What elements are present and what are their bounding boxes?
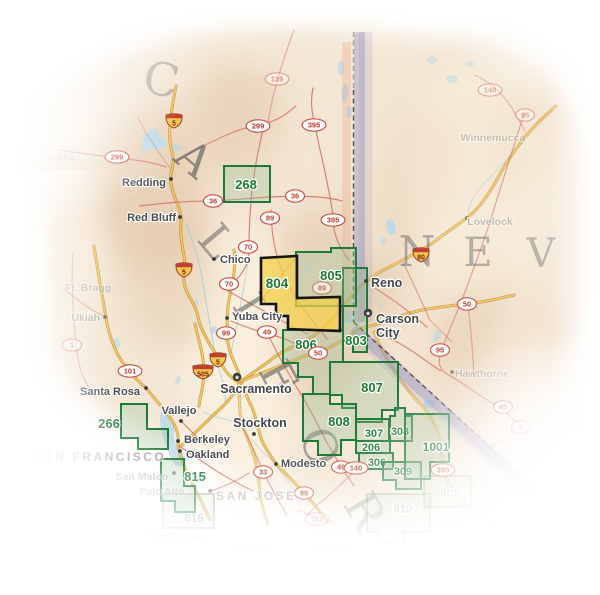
svg-text:95: 95 — [499, 403, 507, 412]
map-box-label-807: 807 — [361, 380, 383, 395]
city-palo-alto: Palo Alto — [139, 486, 184, 498]
city-label: Redding — [122, 177, 166, 189]
highway-shield-s-33: 33 — [254, 466, 273, 478]
city-dot — [103, 315, 107, 319]
city-label: Berkeley — [184, 434, 231, 446]
city-label: Carson — [376, 312, 419, 326]
city-santa-rosa: Santa Rosa — [80, 386, 148, 398]
city-label: Santa Rosa — [80, 386, 141, 398]
city-dot — [178, 449, 182, 453]
map-box-label-805: 805 — [320, 268, 342, 283]
svg-text:5: 5 — [172, 121, 176, 128]
highway-shield-s-299: 299 — [105, 151, 129, 163]
highway-shield-u-95: 95 — [431, 344, 450, 356]
svg-text:49: 49 — [263, 328, 271, 337]
highway-shield-u-395: 395 — [431, 464, 455, 476]
map-box-label-266: 266 — [98, 416, 120, 431]
lake — [427, 56, 437, 64]
map-box-label-816: 816 — [184, 513, 203, 525]
highway-shield-s-299: 299 — [246, 120, 270, 132]
highway-shield-u-395: 395 — [302, 119, 326, 131]
map-box-label-804: 804 — [266, 276, 289, 291]
city-label: Chico — [220, 254, 251, 266]
map-box-label-810: 810 — [393, 504, 412, 516]
highway-shield-u-50: 50 — [458, 298, 477, 310]
highway-shield-s-36: 36 — [286, 190, 305, 202]
city-dot — [178, 215, 182, 219]
map-box-809[interactable]: 809 — [424, 476, 471, 507]
highway-shield-u-50: 50 — [309, 347, 328, 359]
svg-text:1: 1 — [70, 341, 74, 350]
city-dot — [364, 279, 368, 283]
highway-shield-s-140: 140 — [344, 462, 368, 474]
state-letter-e: E — [463, 230, 492, 276]
lake — [381, 237, 386, 245]
svg-text:89: 89 — [266, 214, 274, 223]
svg-text:36: 36 — [209, 197, 217, 206]
city-dot — [172, 471, 176, 475]
svg-text:36: 36 — [291, 192, 299, 201]
map-box-outline-810[interactable] — [367, 494, 430, 543]
svg-text:5: 5 — [216, 360, 220, 367]
map-box-label-808: 808 — [328, 414, 350, 429]
city-berkeley: Berkeley — [176, 434, 231, 446]
highway-shield-s-139: 139 — [265, 73, 289, 85]
svg-text:395: 395 — [327, 216, 340, 225]
city-label: Yuba City — [232, 311, 283, 323]
city-red-bluff: Red Bluff — [127, 212, 182, 224]
city-fresno: Fresno — [318, 542, 353, 554]
svg-text:139: 139 — [271, 75, 284, 84]
lake — [466, 61, 474, 67]
city-label: Bishop — [471, 480, 507, 492]
city-label: Vallejo — [162, 405, 197, 417]
svg-text:152: 152 — [311, 515, 324, 524]
city-hawthorne: Hawthorne — [450, 368, 509, 380]
highway-shield-s-99: 99 — [217, 327, 236, 339]
city-label: Eureka — [39, 151, 74, 163]
city-label: Hawthorne — [455, 368, 509, 380]
highway-shield-u-6: 6 — [512, 421, 531, 433]
highway-shield-s-1: 1 — [63, 339, 82, 351]
city-dot — [179, 419, 183, 423]
city-label: Red Bluff — [127, 212, 176, 224]
highway-shield-s-89: 89 — [261, 212, 280, 224]
city-dot — [225, 316, 229, 320]
city-salinas: Salinas — [231, 542, 268, 554]
svg-text:299: 299 — [252, 122, 265, 131]
city-santa-cruz: Santa Cruz — [149, 530, 204, 542]
city-label: Stockton — [233, 416, 286, 430]
city-dot — [176, 439, 180, 443]
map-box-label-307: 307 — [365, 428, 383, 440]
map-box-label-803: 803 — [345, 333, 367, 348]
highway-shield-s-49: 49 — [258, 326, 277, 338]
city-bishop: Bishop — [469, 480, 507, 492]
city-yuba-city: Yuba City — [225, 311, 283, 323]
city-ft-bragg: Ft. Bragg — [65, 282, 111, 294]
map-svg: CALIFORNEV816810809806807808307308206306… — [0, 0, 600, 595]
svg-text:95: 95 — [436, 346, 444, 355]
city-label: Sacramento — [220, 382, 292, 396]
city-label: Reno — [371, 276, 403, 290]
city-eureka: Eureka — [39, 151, 74, 163]
city-redding: Redding — [122, 177, 173, 189]
city-label: San Mateo — [115, 471, 168, 483]
city-label: Lovelock — [467, 216, 513, 228]
city-sacramento: Sacramento — [220, 382, 292, 396]
svg-text:395: 395 — [308, 121, 321, 130]
city-san-francisco: SAN FRANCISCO — [34, 450, 167, 464]
svg-text:★: ★ — [234, 373, 240, 381]
svg-text:505: 505 — [197, 372, 209, 379]
city-label: Modesto — [281, 458, 327, 470]
svg-text:★: ★ — [365, 309, 371, 317]
highway-shield-s-152: 152 — [305, 513, 329, 525]
svg-text:140: 140 — [350, 464, 363, 473]
map-box-label-809: 809 — [440, 488, 459, 500]
city-label: Oakland — [186, 449, 229, 461]
city-city: City — [376, 326, 400, 340]
highway-shield-u-95: 95 — [494, 401, 513, 413]
svg-text:70: 70 — [244, 243, 252, 252]
map-box-label-268: 268 — [235, 177, 257, 192]
svg-text:89: 89 — [318, 284, 326, 293]
highway-shield-s-99: 99 — [295, 487, 314, 499]
city-label: Ukiah — [71, 312, 100, 324]
city-label: Fresno — [318, 542, 353, 554]
svg-text:50: 50 — [314, 349, 322, 358]
city-dot — [212, 257, 216, 261]
svg-text:6: 6 — [519, 423, 523, 432]
svg-text:50: 50 — [463, 300, 471, 309]
state-letter-v: V — [526, 231, 557, 277]
city-oakland: Oakland — [178, 449, 229, 461]
svg-text:99: 99 — [300, 489, 308, 498]
city-san-jose: SAN JOSE — [208, 489, 297, 503]
city-winnemucca: Winnemucca — [461, 132, 526, 144]
highway-shield-u-395: 395 — [321, 214, 345, 226]
svg-text:5: 5 — [182, 270, 186, 277]
svg-text:99: 99 — [222, 329, 230, 338]
city-dot — [208, 489, 212, 493]
city-label: Ft. Bragg — [65, 282, 111, 294]
map-index-image: CALIFORNEV816810809806807808307308206306… — [0, 0, 600, 595]
svg-text:95: 95 — [521, 111, 529, 120]
map-box-268[interactable]: 268 — [224, 166, 270, 202]
city-dot — [144, 386, 148, 390]
city-label: Winnemucca — [461, 132, 526, 144]
highway-shield-u-95: 95 — [516, 109, 535, 121]
svg-text:140: 140 — [484, 86, 497, 95]
svg-text:395: 395 — [437, 466, 450, 475]
highway-shield-u-101: 101 — [118, 365, 142, 377]
city-dot — [274, 462, 278, 466]
map-box-label-1001: 1001 — [423, 440, 450, 454]
city-label: City — [376, 326, 400, 340]
svg-text:33: 33 — [259, 468, 267, 477]
svg-text:80: 80 — [417, 255, 425, 262]
city-dot — [169, 177, 173, 181]
map-box-label-815: 815 — [184, 469, 206, 484]
highway-shield-s-36: 36 — [204, 195, 223, 207]
city-dot — [252, 432, 256, 436]
city-label: SAN FRANCISCO — [34, 450, 167, 464]
highway-shield-s-70: 70 — [220, 278, 239, 290]
svg-text:70: 70 — [225, 280, 233, 289]
city-label: SAN JOSE — [216, 489, 297, 503]
city-label: Santa Cruz — [149, 530, 204, 542]
city-dot — [450, 370, 454, 374]
svg-text:101: 101 — [124, 367, 137, 376]
map-box-810[interactable]: 810 — [367, 494, 430, 543]
city-lovelock: Lovelock — [465, 216, 513, 228]
highway-shield-s-140: 140 — [478, 84, 502, 96]
city-modesto: Modesto — [274, 458, 326, 470]
map-box-307[interactable]: 307 — [356, 419, 389, 441]
highway-shield-s-89: 89 — [313, 282, 332, 294]
city-label: Salinas — [231, 542, 268, 554]
city-label: Palo Alto — [139, 486, 184, 498]
svg-text:299: 299 — [111, 153, 124, 162]
highway-shield-s-70: 70 — [239, 241, 258, 253]
city-carson: Carson — [376, 312, 419, 326]
city-san-mateo: San Mateo — [115, 471, 175, 483]
